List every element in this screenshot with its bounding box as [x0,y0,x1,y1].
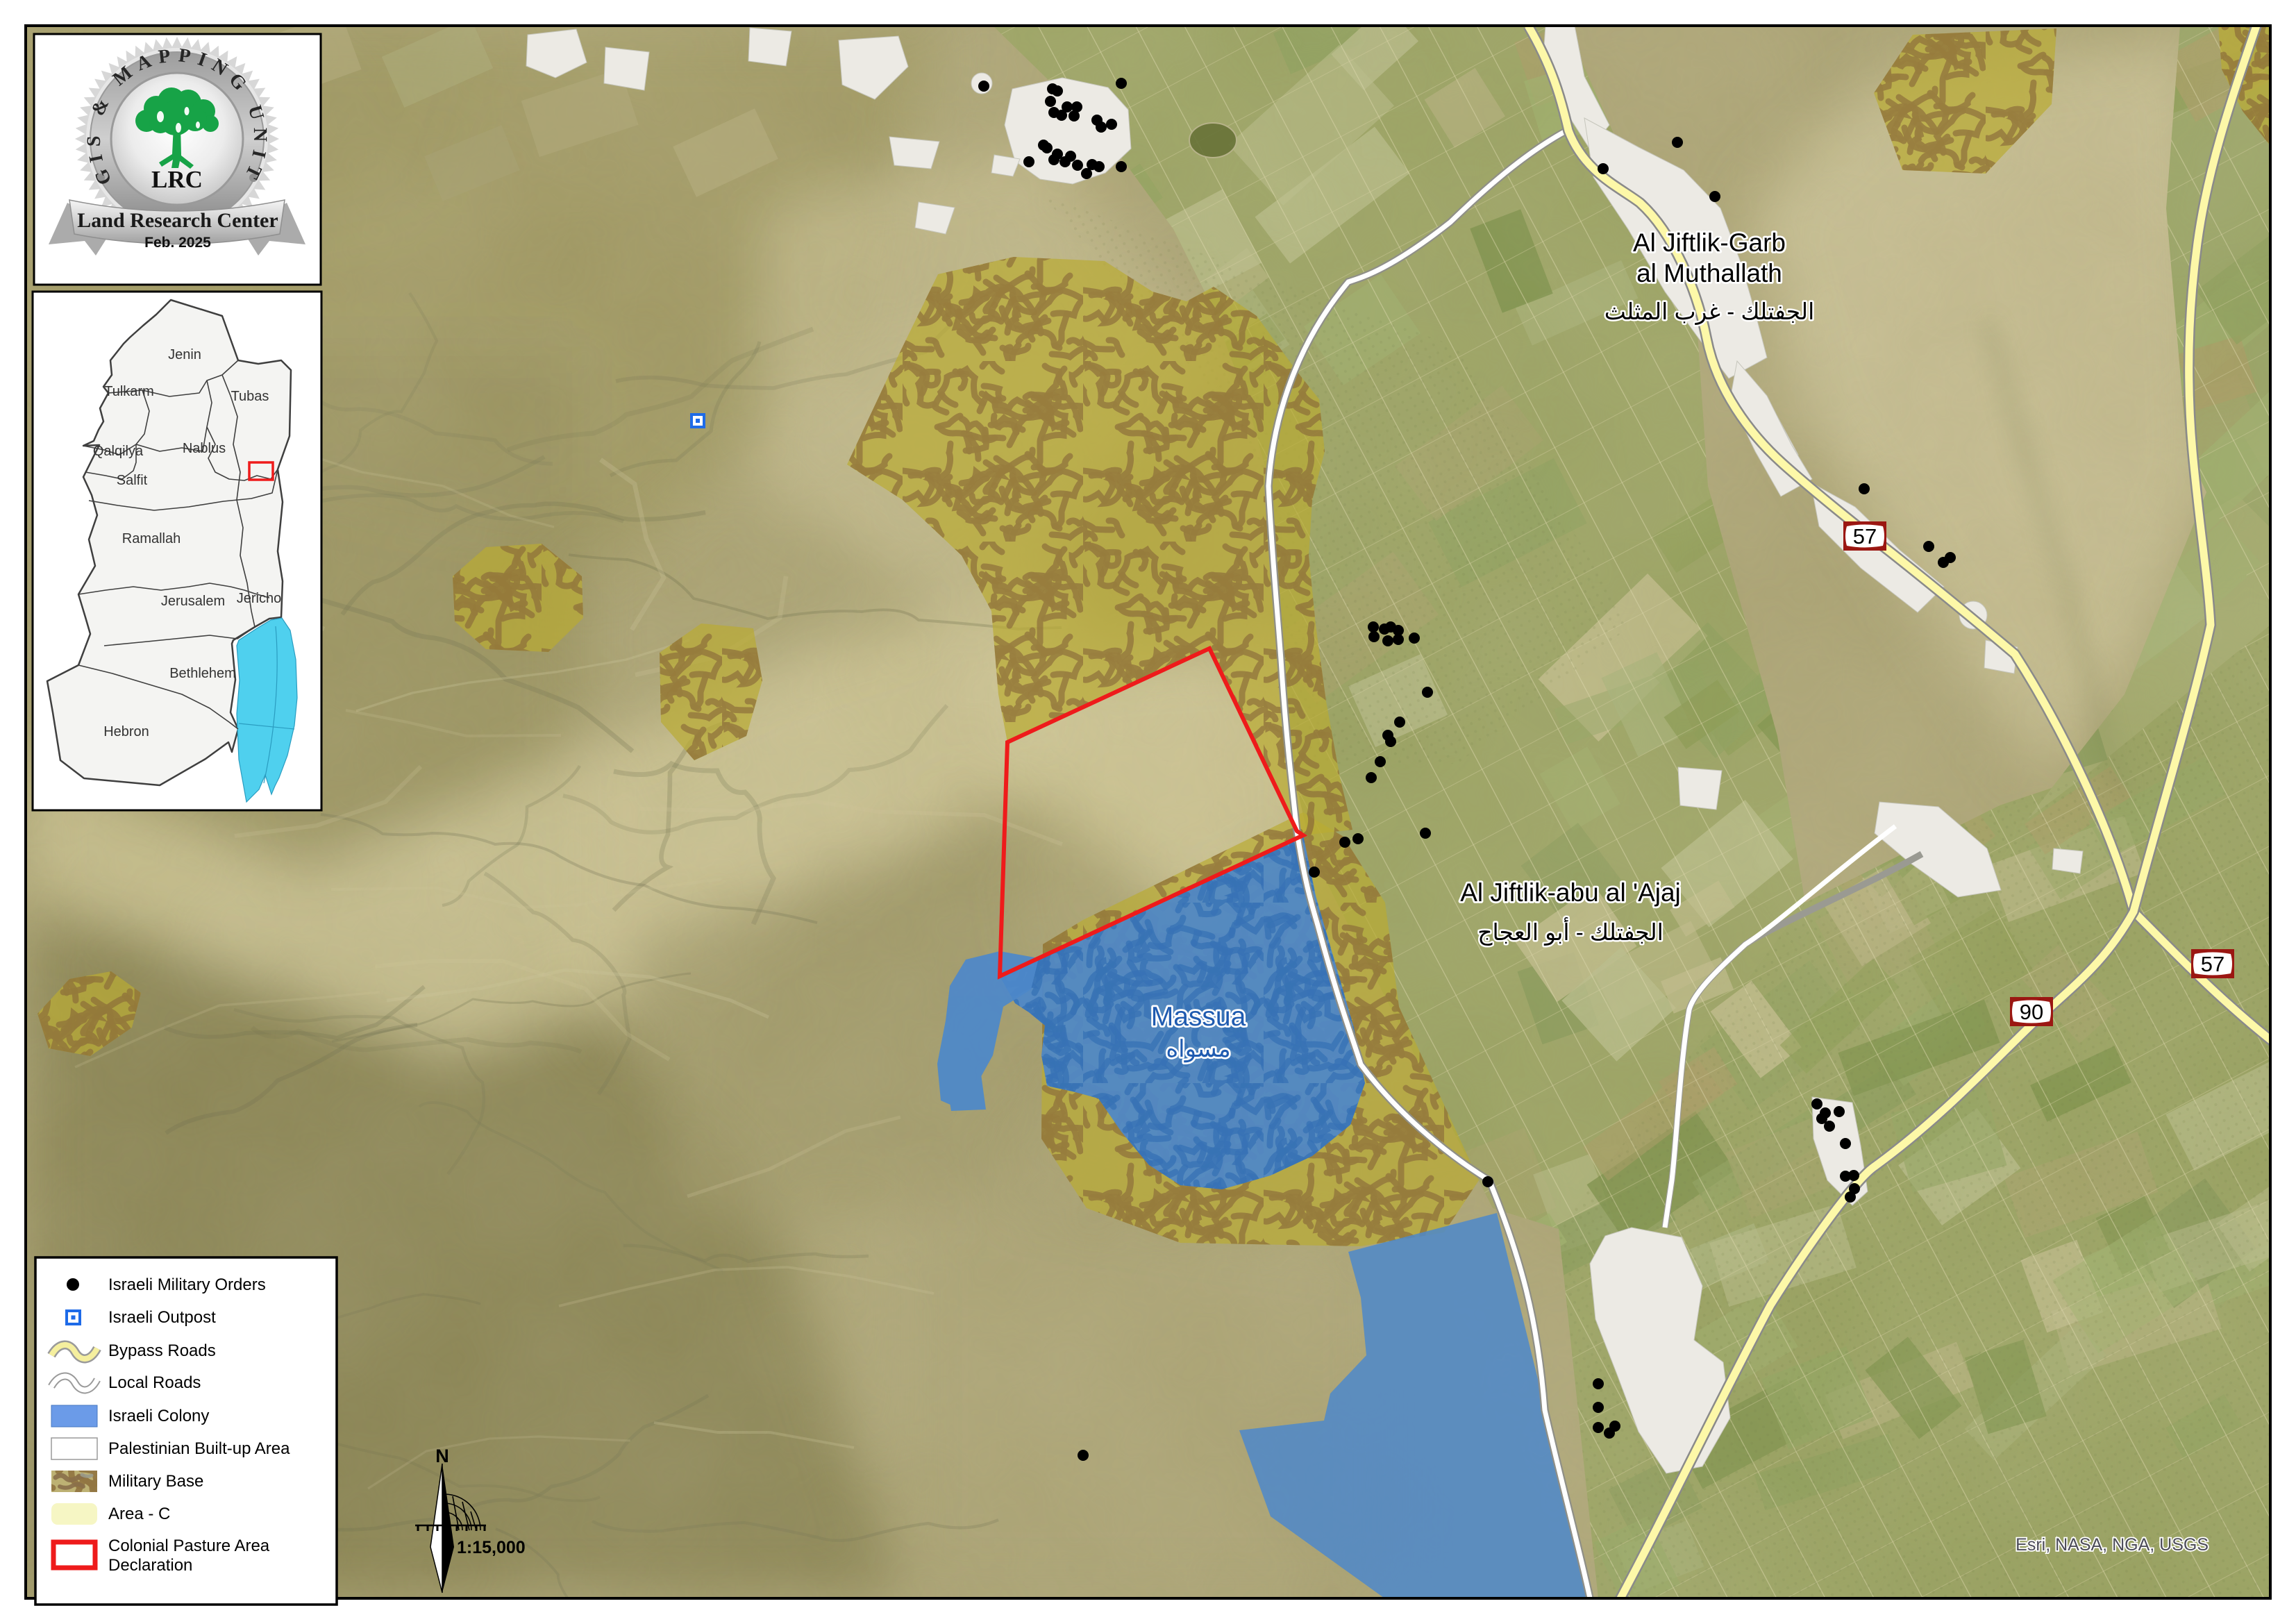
svg-text:Jericho: Jericho [237,591,281,606]
svg-text:Tubas: Tubas [231,389,269,404]
svg-text:Tulkarm: Tulkarm [104,384,153,399]
svg-text:مسواه: مسواه [1166,1036,1230,1063]
svg-text:Israeli Colony: Israeli Colony [108,1407,209,1425]
svg-text:Local Roads: Local Roads [108,1373,201,1392]
svg-text:Hebron: Hebron [103,724,149,739]
svg-text:Land Research Center: Land Research Center [77,209,278,232]
svg-text:Israeli Outpost: Israeli Outpost [108,1308,216,1327]
svg-text:Palestinian Built-up Area: Palestinian Built-up Area [108,1439,290,1458]
svg-text:Salfit: Salfit [117,473,148,488]
svg-text:N: N [435,1446,449,1466]
svg-text:Feb. 2025: Feb. 2025 [144,235,211,251]
svg-text:الجفتلك - أبو العجاج: الجفتلك - أبو العجاج [1477,917,1664,946]
svg-text:Ramallah: Ramallah [122,531,181,546]
svg-text:Declaration: Declaration [108,1556,192,1575]
svg-text:Massua: Massua [1151,1002,1246,1032]
svg-text:Bethlehem: Bethlehem [169,666,236,681]
svg-text:1:15,000: 1:15,000 [457,1538,526,1557]
svg-text:al Muthallath: al Muthallath [1636,259,1782,287]
svg-text:57: 57 [1853,524,1877,549]
svg-text:LRC: LRC [151,166,203,193]
svg-text:Area - C: Area - C [108,1505,170,1523]
svg-text:57: 57 [2201,952,2224,976]
svg-text:Bypass Roads: Bypass Roads [108,1341,216,1360]
svg-text:Esri, NASA, NGA, USGS: Esri, NASA, NGA, USGS [2016,1535,2209,1555]
svg-text:Al Jiftlik-Garb: Al Jiftlik-Garb [1633,228,1786,257]
svg-text:Jerusalem: Jerusalem [161,594,225,609]
svg-text:Military Base: Military Base [108,1472,203,1491]
svg-text:Israeli Military Orders: Israeli Military Orders [108,1275,266,1294]
svg-text:Colonial Pasture Area: Colonial Pasture Area [108,1537,270,1555]
svg-text:Qalqilya: Qalqilya [93,444,144,459]
svg-text:Nablus: Nablus [183,441,226,456]
svg-text:Al Jiftlik-abu al 'Ajaj: Al Jiftlik-abu al 'Ajaj [1460,878,1681,907]
svg-text:Jenin: Jenin [168,347,201,362]
svg-text:الجفتلك - غرب المثلث: الجفتلك - غرب المثلث [1604,299,1815,326]
svg-text:90: 90 [2020,1000,2043,1024]
